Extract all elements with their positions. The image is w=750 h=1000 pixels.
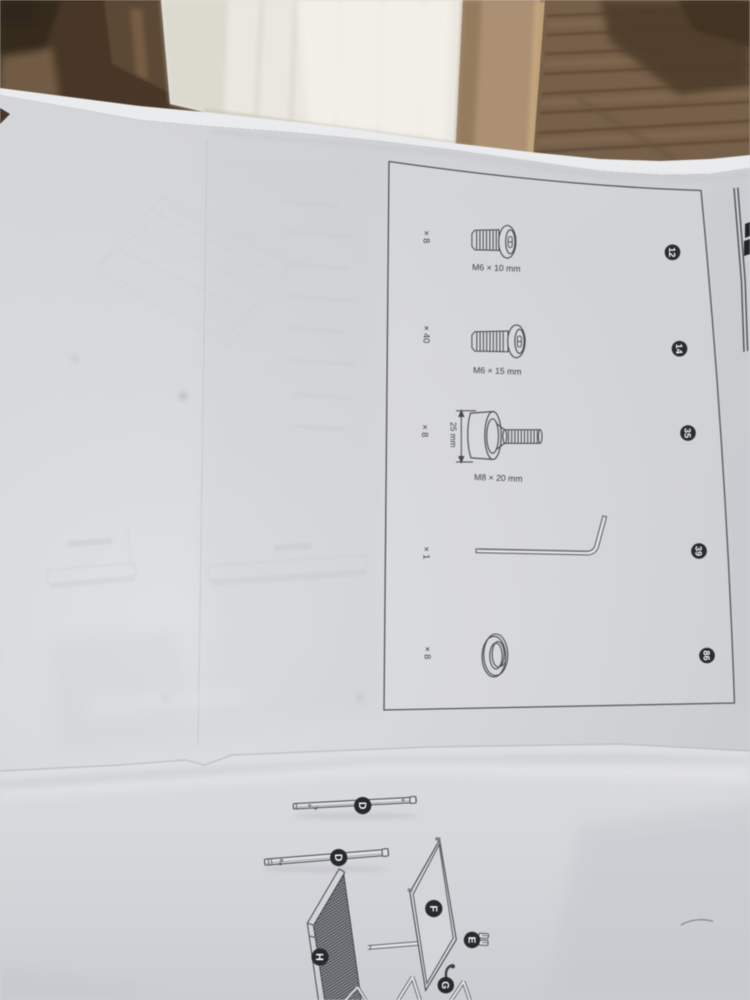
svg-text:× 1: × 1: [422, 547, 432, 560]
svg-text:35: 35: [683, 428, 693, 438]
svg-text:25 mm: 25 mm: [449, 422, 459, 448]
svg-text:M8 × 20 mm: M8 × 20 mm: [474, 472, 523, 484]
svg-text:E: E: [465, 937, 476, 944]
svg-text:12: 12: [667, 247, 677, 257]
svg-text:39: 39: [694, 546, 704, 556]
svg-text:× 8: × 8: [422, 231, 432, 244]
svg-text:M6 × 15 mm: M6 × 15 mm: [473, 365, 522, 377]
svg-text:14: 14: [674, 344, 684, 355]
svg-text:D: D: [356, 802, 368, 810]
svg-text:D: D: [332, 854, 344, 862]
svg-text:H: H: [313, 953, 325, 961]
svg-text:× 8: × 8: [423, 647, 433, 660]
svg-text:G: G: [439, 981, 450, 989]
svg-text:M6 × 10 mm: M6 × 10 mm: [472, 262, 521, 274]
svg-text:× 40: × 40: [422, 326, 432, 344]
svg-text:86: 86: [702, 650, 712, 660]
svg-text:× 8: × 8: [420, 425, 430, 438]
svg-text:F: F: [427, 905, 439, 912]
